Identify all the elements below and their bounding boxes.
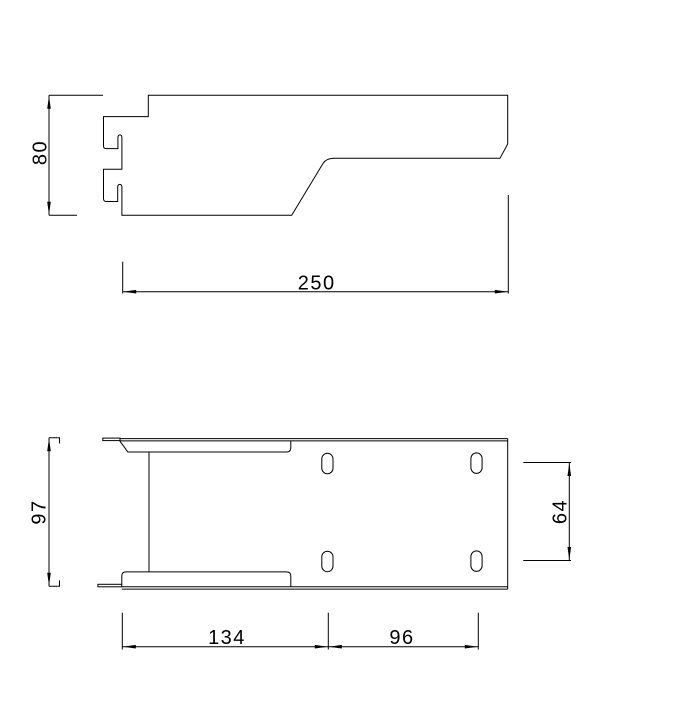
dimension-text: 97 xyxy=(29,499,51,524)
slot-hole xyxy=(322,453,333,474)
slot-hole xyxy=(471,551,482,572)
dimension-text: 80 xyxy=(30,140,52,165)
arrowhead-down xyxy=(568,547,572,560)
dimension-text: 134 xyxy=(208,627,246,649)
hook-tab-top xyxy=(103,438,120,441)
length-dimension: 250 xyxy=(123,195,509,295)
arrowhead-left xyxy=(123,290,136,294)
hook-tab-bottom xyxy=(98,584,122,587)
arrowhead-up xyxy=(47,96,51,109)
extension-stub-bottom xyxy=(49,580,60,586)
flange-top xyxy=(120,441,291,452)
bracket-side-outline xyxy=(104,95,508,215)
flange-bottom xyxy=(122,572,291,587)
arrowhead-right xyxy=(495,290,508,294)
extension-stub-top xyxy=(49,438,60,444)
edge-to-slot-dimension: 134 xyxy=(122,613,328,650)
plan-view: 97 64 134 96 xyxy=(29,438,572,650)
slot-pitch-dimension: 96 xyxy=(328,613,478,650)
arrowhead-right xyxy=(315,645,328,649)
arrowhead-left xyxy=(123,645,136,649)
slot-hole xyxy=(322,551,333,572)
arrowhead-up xyxy=(568,463,572,476)
dimension-text: 96 xyxy=(389,627,414,649)
arrowhead-down xyxy=(47,573,51,586)
arrowhead-right xyxy=(465,645,478,649)
slot-hole xyxy=(471,453,482,474)
height-dimension: 80 xyxy=(30,95,104,215)
dimension-text: 64 xyxy=(550,499,572,524)
width-dimension: 97 xyxy=(29,438,60,587)
dimension-text: 250 xyxy=(298,273,336,295)
slot-spacing-dimension: 64 xyxy=(523,463,571,561)
technical-drawing: 80 250 xyxy=(0,0,676,706)
arrowhead-left xyxy=(329,645,342,649)
arrowhead-up xyxy=(47,438,51,451)
arrowhead-down xyxy=(47,202,51,215)
side-view: 80 250 xyxy=(30,95,509,294)
